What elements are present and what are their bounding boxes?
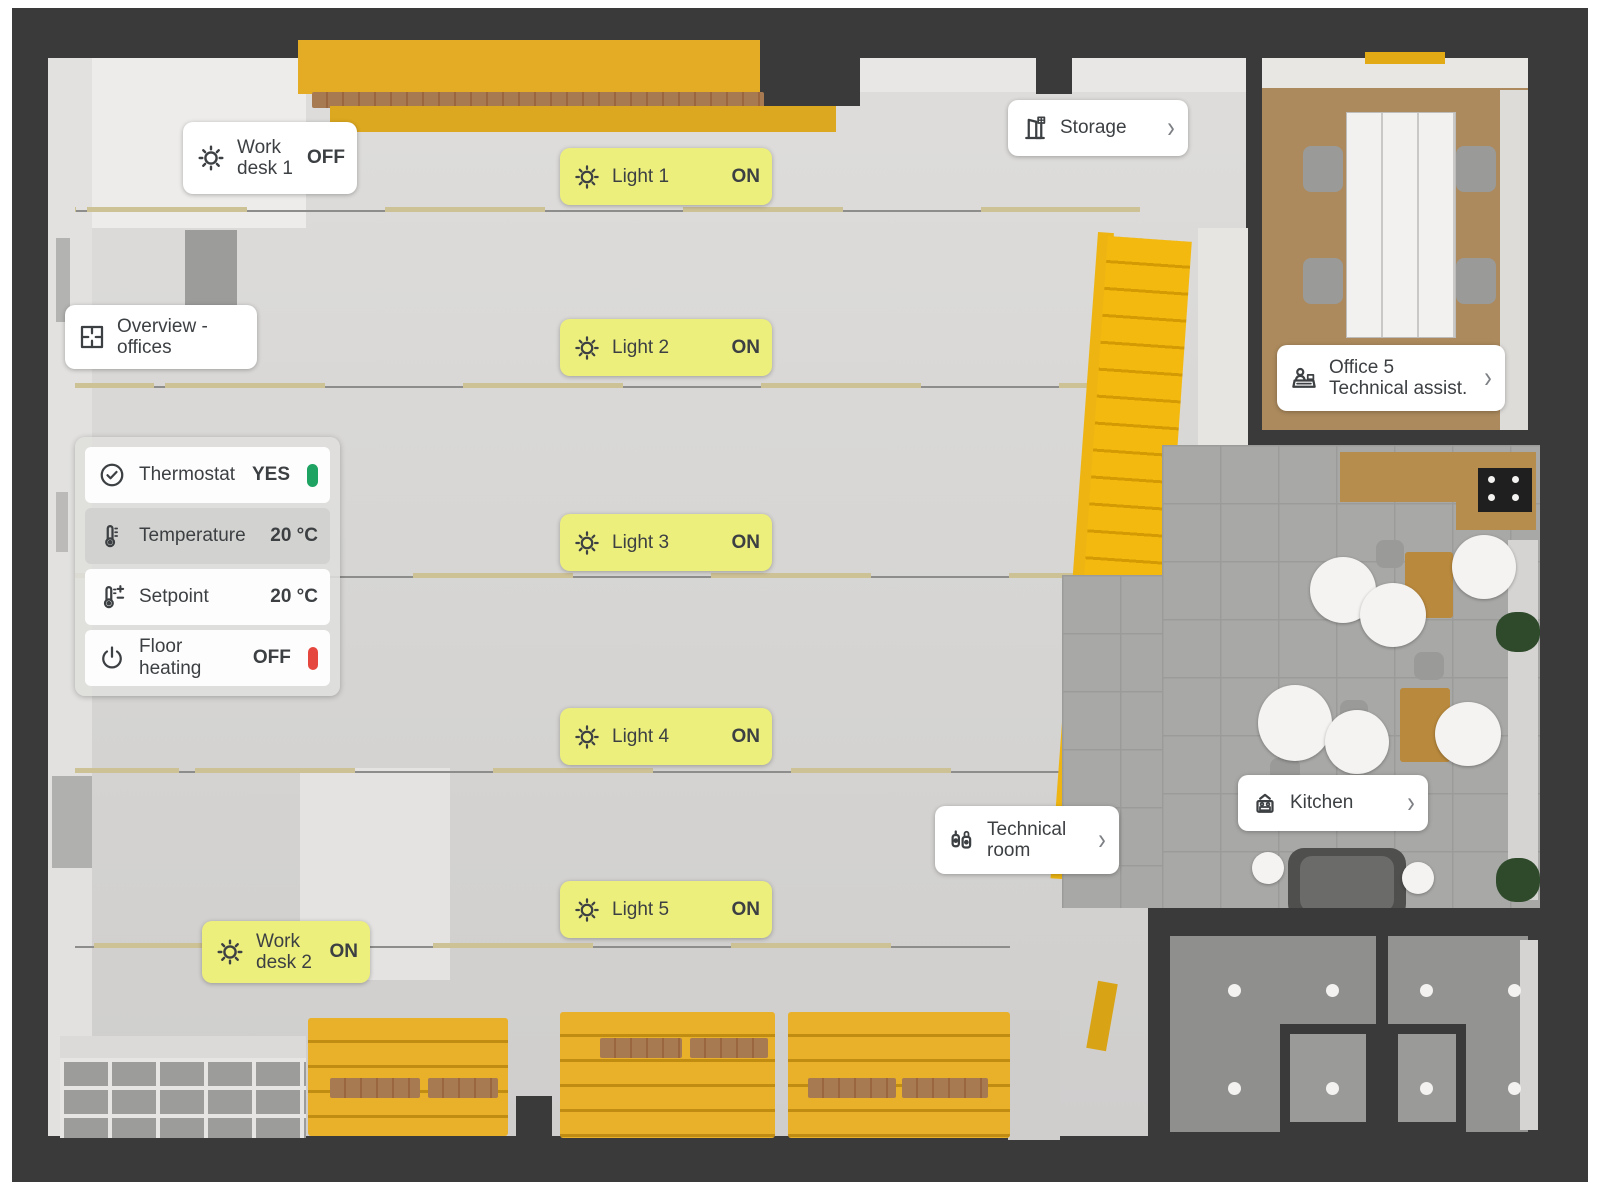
chevron-right-icon: › bbox=[1167, 113, 1175, 143]
light-icon bbox=[572, 895, 602, 925]
office-chair bbox=[1303, 146, 1343, 192]
stove-burner bbox=[1512, 476, 1519, 483]
light-state: ON bbox=[732, 899, 761, 921]
kitchen-card[interactable]: Kitchen › bbox=[1238, 775, 1428, 831]
card-label: Work bbox=[237, 137, 293, 158]
light-icon bbox=[572, 722, 602, 752]
kitchen-stool bbox=[1252, 852, 1284, 884]
row-value: YES bbox=[252, 464, 290, 486]
crate bbox=[600, 1038, 682, 1058]
thermometer-setpoint-icon bbox=[97, 582, 127, 612]
light-label: Light 4 bbox=[612, 726, 669, 748]
setpoint-row[interactable]: Setpoint 20 °C bbox=[85, 569, 330, 625]
ceiling-light bbox=[1420, 1082, 1433, 1095]
card-label: room bbox=[987, 840, 1066, 861]
round-table bbox=[1452, 535, 1516, 599]
row-value: OFF bbox=[253, 647, 291, 669]
storage-card[interactable]: Storage › bbox=[1008, 100, 1188, 156]
kitchen-chair bbox=[1414, 652, 1444, 680]
round-table bbox=[1325, 710, 1389, 774]
card-label: Storage bbox=[1060, 117, 1127, 139]
light-3-button[interactable]: Light 3 ON bbox=[560, 514, 772, 571]
ceiling-light bbox=[1508, 1082, 1521, 1095]
chevron-right-icon: › bbox=[1484, 363, 1492, 393]
temperature-row[interactable]: Temperature 20 °C bbox=[85, 508, 330, 564]
status-value: OFF bbox=[307, 147, 345, 169]
work-desk-1-card[interactable]: Work desk 1 OFF bbox=[183, 122, 357, 194]
card-label: Work bbox=[256, 931, 312, 952]
ceiling-light bbox=[1228, 984, 1241, 997]
row-value: 20 °C bbox=[270, 525, 318, 547]
bathroom-stall bbox=[1280, 1024, 1376, 1132]
bottom-left-wall bbox=[60, 1036, 306, 1058]
office5-card[interactable]: Office 5 Technical assist. › bbox=[1277, 345, 1505, 411]
overview-offices-card[interactable]: Overview - offices bbox=[65, 305, 257, 369]
light-rail bbox=[75, 207, 1140, 214]
crate bbox=[330, 1078, 420, 1098]
stove bbox=[1478, 468, 1532, 512]
chevron-right-icon: › bbox=[1098, 825, 1106, 855]
light-icon bbox=[572, 528, 602, 558]
card-label: Overview - bbox=[117, 316, 208, 337]
card-label: desk 1 bbox=[237, 158, 293, 179]
status-indicator-red bbox=[308, 647, 318, 670]
light-state: ON bbox=[732, 337, 761, 359]
floor-heating-row[interactable]: Floor heating OFF bbox=[85, 630, 330, 686]
light-state: ON bbox=[732, 726, 761, 748]
card-label: desk 2 bbox=[256, 952, 312, 973]
row-value: 20 °C bbox=[270, 586, 318, 608]
card-label: Technical bbox=[987, 819, 1066, 840]
power-icon bbox=[97, 643, 127, 673]
light-rail bbox=[75, 768, 1145, 775]
card-label: offices bbox=[117, 337, 208, 358]
office-desk-group bbox=[1346, 112, 1456, 338]
light-label: Light 1 bbox=[612, 166, 669, 188]
thermostat-row[interactable]: Thermostat YES bbox=[85, 447, 330, 503]
bottom-left-grate-floor bbox=[60, 1058, 306, 1138]
light-label: Light 3 bbox=[612, 532, 669, 554]
crate bbox=[690, 1038, 768, 1058]
work-desk-2-card[interactable]: Work desk 2 ON bbox=[202, 921, 370, 983]
row-label: Floor heating bbox=[139, 636, 241, 680]
kitchen-stool bbox=[1402, 862, 1434, 894]
light-4-button[interactable]: Light 4 ON bbox=[560, 708, 772, 765]
ceiling-light bbox=[1326, 1082, 1339, 1095]
round-table bbox=[1360, 583, 1426, 647]
status-value: ON bbox=[330, 941, 359, 963]
left-door-2 bbox=[56, 492, 68, 552]
card-label: Technical assist. bbox=[1329, 378, 1467, 399]
light-icon bbox=[214, 936, 246, 968]
light-icon bbox=[572, 333, 602, 363]
light-2-button[interactable]: Light 2 ON bbox=[560, 319, 772, 376]
round-table bbox=[1435, 702, 1501, 766]
chevron-right-icon: › bbox=[1407, 788, 1415, 818]
ceiling-light bbox=[1508, 984, 1521, 997]
check-circle-icon bbox=[97, 460, 127, 490]
top-bench-lower bbox=[330, 106, 836, 132]
round-table bbox=[1258, 685, 1332, 761]
kitchen-chair bbox=[1376, 540, 1404, 568]
ceiling-light bbox=[1326, 984, 1339, 997]
light-state: ON bbox=[732, 532, 761, 554]
row-label: Temperature bbox=[139, 525, 246, 547]
technical-room-card[interactable]: Technical room › bbox=[935, 806, 1119, 874]
card-label: Office 5 bbox=[1329, 357, 1467, 378]
office-chair bbox=[1456, 146, 1496, 192]
crate bbox=[808, 1078, 896, 1098]
bathroom-stall bbox=[1388, 1024, 1466, 1132]
status-indicator-green bbox=[307, 464, 318, 487]
light-1-button[interactable]: Light 1 ON bbox=[560, 148, 772, 205]
storage-rack bbox=[560, 1012, 775, 1138]
office-chair bbox=[1456, 258, 1496, 304]
thermometer-icon bbox=[97, 521, 127, 551]
rack-side-wall bbox=[1008, 1010, 1060, 1140]
office5-yellow-strip bbox=[1365, 52, 1445, 64]
light-5-button[interactable]: Light 5 ON bbox=[560, 881, 772, 938]
bottom-wall-notch bbox=[516, 1096, 552, 1140]
light-icon bbox=[195, 142, 227, 174]
left-door-3 bbox=[52, 776, 92, 868]
crate bbox=[428, 1078, 498, 1098]
ceiling-light bbox=[1228, 1082, 1241, 1095]
kitchen-island-top bbox=[1300, 856, 1394, 912]
light-state: ON bbox=[732, 166, 761, 188]
stove-burner bbox=[1488, 476, 1495, 483]
bathroom-right-door bbox=[1520, 940, 1538, 1130]
floorplan-icon bbox=[77, 322, 107, 352]
plant bbox=[1496, 612, 1540, 652]
card-label: Kitchen bbox=[1290, 792, 1353, 814]
top-bench-upper bbox=[298, 40, 760, 94]
light-label: Light 5 bbox=[612, 899, 669, 921]
crate bbox=[902, 1078, 988, 1098]
stove-burner bbox=[1488, 494, 1495, 501]
top-wall-chunk bbox=[1036, 28, 1072, 94]
stove-burner bbox=[1512, 494, 1519, 501]
office-chair bbox=[1303, 258, 1343, 304]
utility-meters-icon bbox=[947, 825, 977, 855]
person-desk-icon bbox=[1289, 363, 1319, 393]
kitchen-stove-icon bbox=[1250, 788, 1280, 818]
ceiling-light bbox=[1420, 984, 1433, 997]
row-label: Thermostat bbox=[139, 464, 235, 486]
floorplan-screen: Work desk 1 OFF Storage › Light 1 ON Lig… bbox=[0, 0, 1600, 1200]
storage-rack bbox=[788, 1012, 1010, 1138]
thermostat-panel: Thermostat YES Temperature 20 °C Setpoin… bbox=[75, 437, 340, 696]
row-label: Setpoint bbox=[139, 586, 209, 608]
kitchen-right-doors bbox=[1508, 540, 1538, 900]
light-label: Light 2 bbox=[612, 337, 669, 359]
plant bbox=[1496, 858, 1540, 902]
top-wall-piece bbox=[760, 40, 860, 106]
light-rail bbox=[75, 383, 1140, 390]
storage-room-icon bbox=[1020, 113, 1050, 143]
light-icon bbox=[572, 162, 602, 192]
storage-rack bbox=[308, 1018, 508, 1136]
